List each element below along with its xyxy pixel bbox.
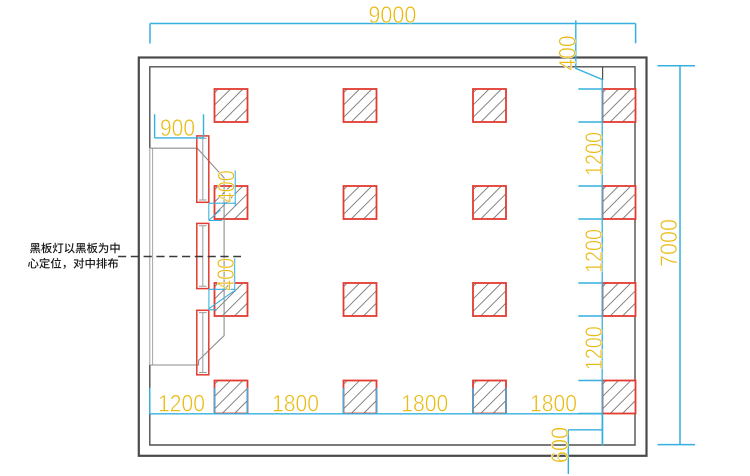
svg-text:900: 900: [160, 115, 195, 142]
svg-text:600: 600: [547, 427, 574, 464]
svg-text:1200: 1200: [581, 326, 608, 370]
svg-text:9000: 9000: [368, 2, 416, 29]
svg-text:400: 400: [213, 258, 240, 291]
svg-text:1800: 1800: [530, 390, 577, 417]
svg-text:1800: 1800: [401, 390, 448, 417]
svg-text:1200: 1200: [158, 390, 205, 417]
svg-text:1800: 1800: [272, 390, 319, 417]
svg-text:1200: 1200: [581, 229, 608, 273]
svg-text:1200: 1200: [581, 132, 608, 176]
svg-text:400: 400: [555, 36, 582, 71]
svg-text:7000: 7000: [656, 219, 683, 267]
svg-text:400: 400: [213, 170, 240, 203]
